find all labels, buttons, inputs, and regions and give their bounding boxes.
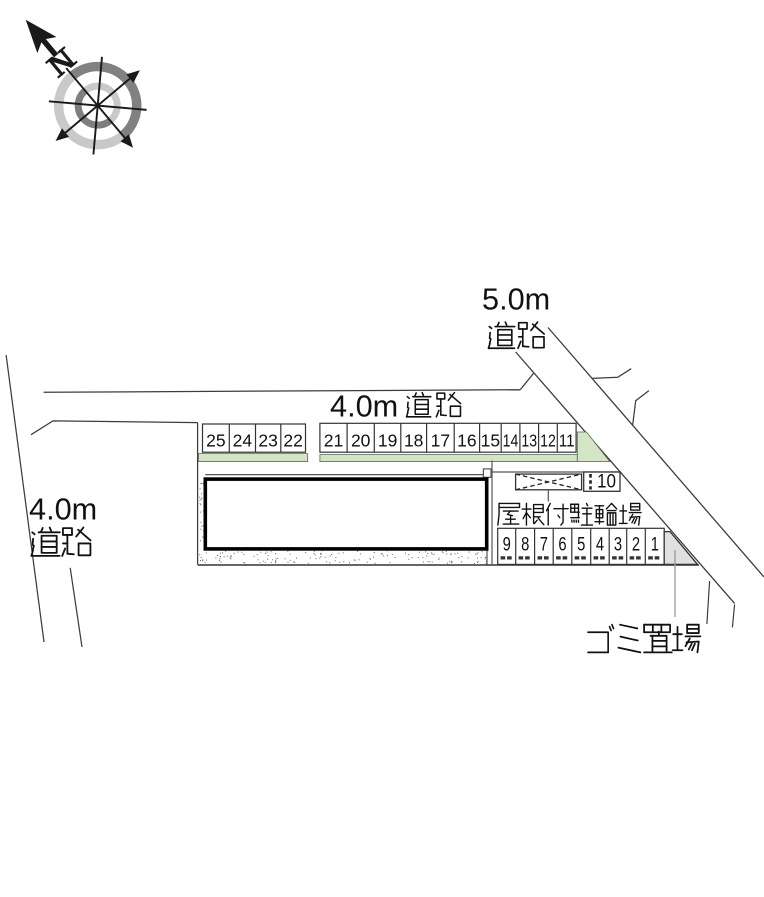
svg-text:1: 1 bbox=[651, 535, 659, 556]
svg-text:8: 8 bbox=[521, 535, 529, 556]
svg-text:4.0m: 4.0m bbox=[330, 388, 398, 423]
svg-text:6: 6 bbox=[558, 535, 566, 556]
svg-text:10: 10 bbox=[597, 471, 616, 493]
svg-text:25: 25 bbox=[206, 431, 225, 451]
svg-text:5: 5 bbox=[577, 535, 585, 556]
svg-text:22: 22 bbox=[283, 431, 302, 451]
svg-text:20: 20 bbox=[351, 431, 371, 451]
svg-text:17: 17 bbox=[431, 431, 450, 451]
svg-text:24: 24 bbox=[233, 431, 253, 451]
svg-text:5.0m: 5.0m bbox=[482, 282, 550, 317]
svg-text:16: 16 bbox=[457, 431, 476, 451]
svg-text:14: 14 bbox=[503, 431, 519, 451]
svg-text:23: 23 bbox=[258, 431, 277, 451]
svg-text:18: 18 bbox=[404, 431, 423, 451]
svg-text:19: 19 bbox=[378, 431, 397, 451]
svg-text:4.0m: 4.0m bbox=[29, 492, 97, 527]
svg-text:2: 2 bbox=[632, 535, 640, 556]
svg-text:4: 4 bbox=[596, 535, 604, 556]
svg-text:12: 12 bbox=[540, 431, 556, 451]
svg-text:9: 9 bbox=[503, 535, 511, 556]
svg-text:13: 13 bbox=[521, 431, 537, 451]
svg-text:7: 7 bbox=[540, 535, 548, 556]
svg-text:15: 15 bbox=[481, 431, 500, 451]
svg-text:3: 3 bbox=[614, 535, 622, 556]
svg-text:21: 21 bbox=[324, 431, 343, 451]
svg-text:11: 11 bbox=[559, 431, 575, 451]
